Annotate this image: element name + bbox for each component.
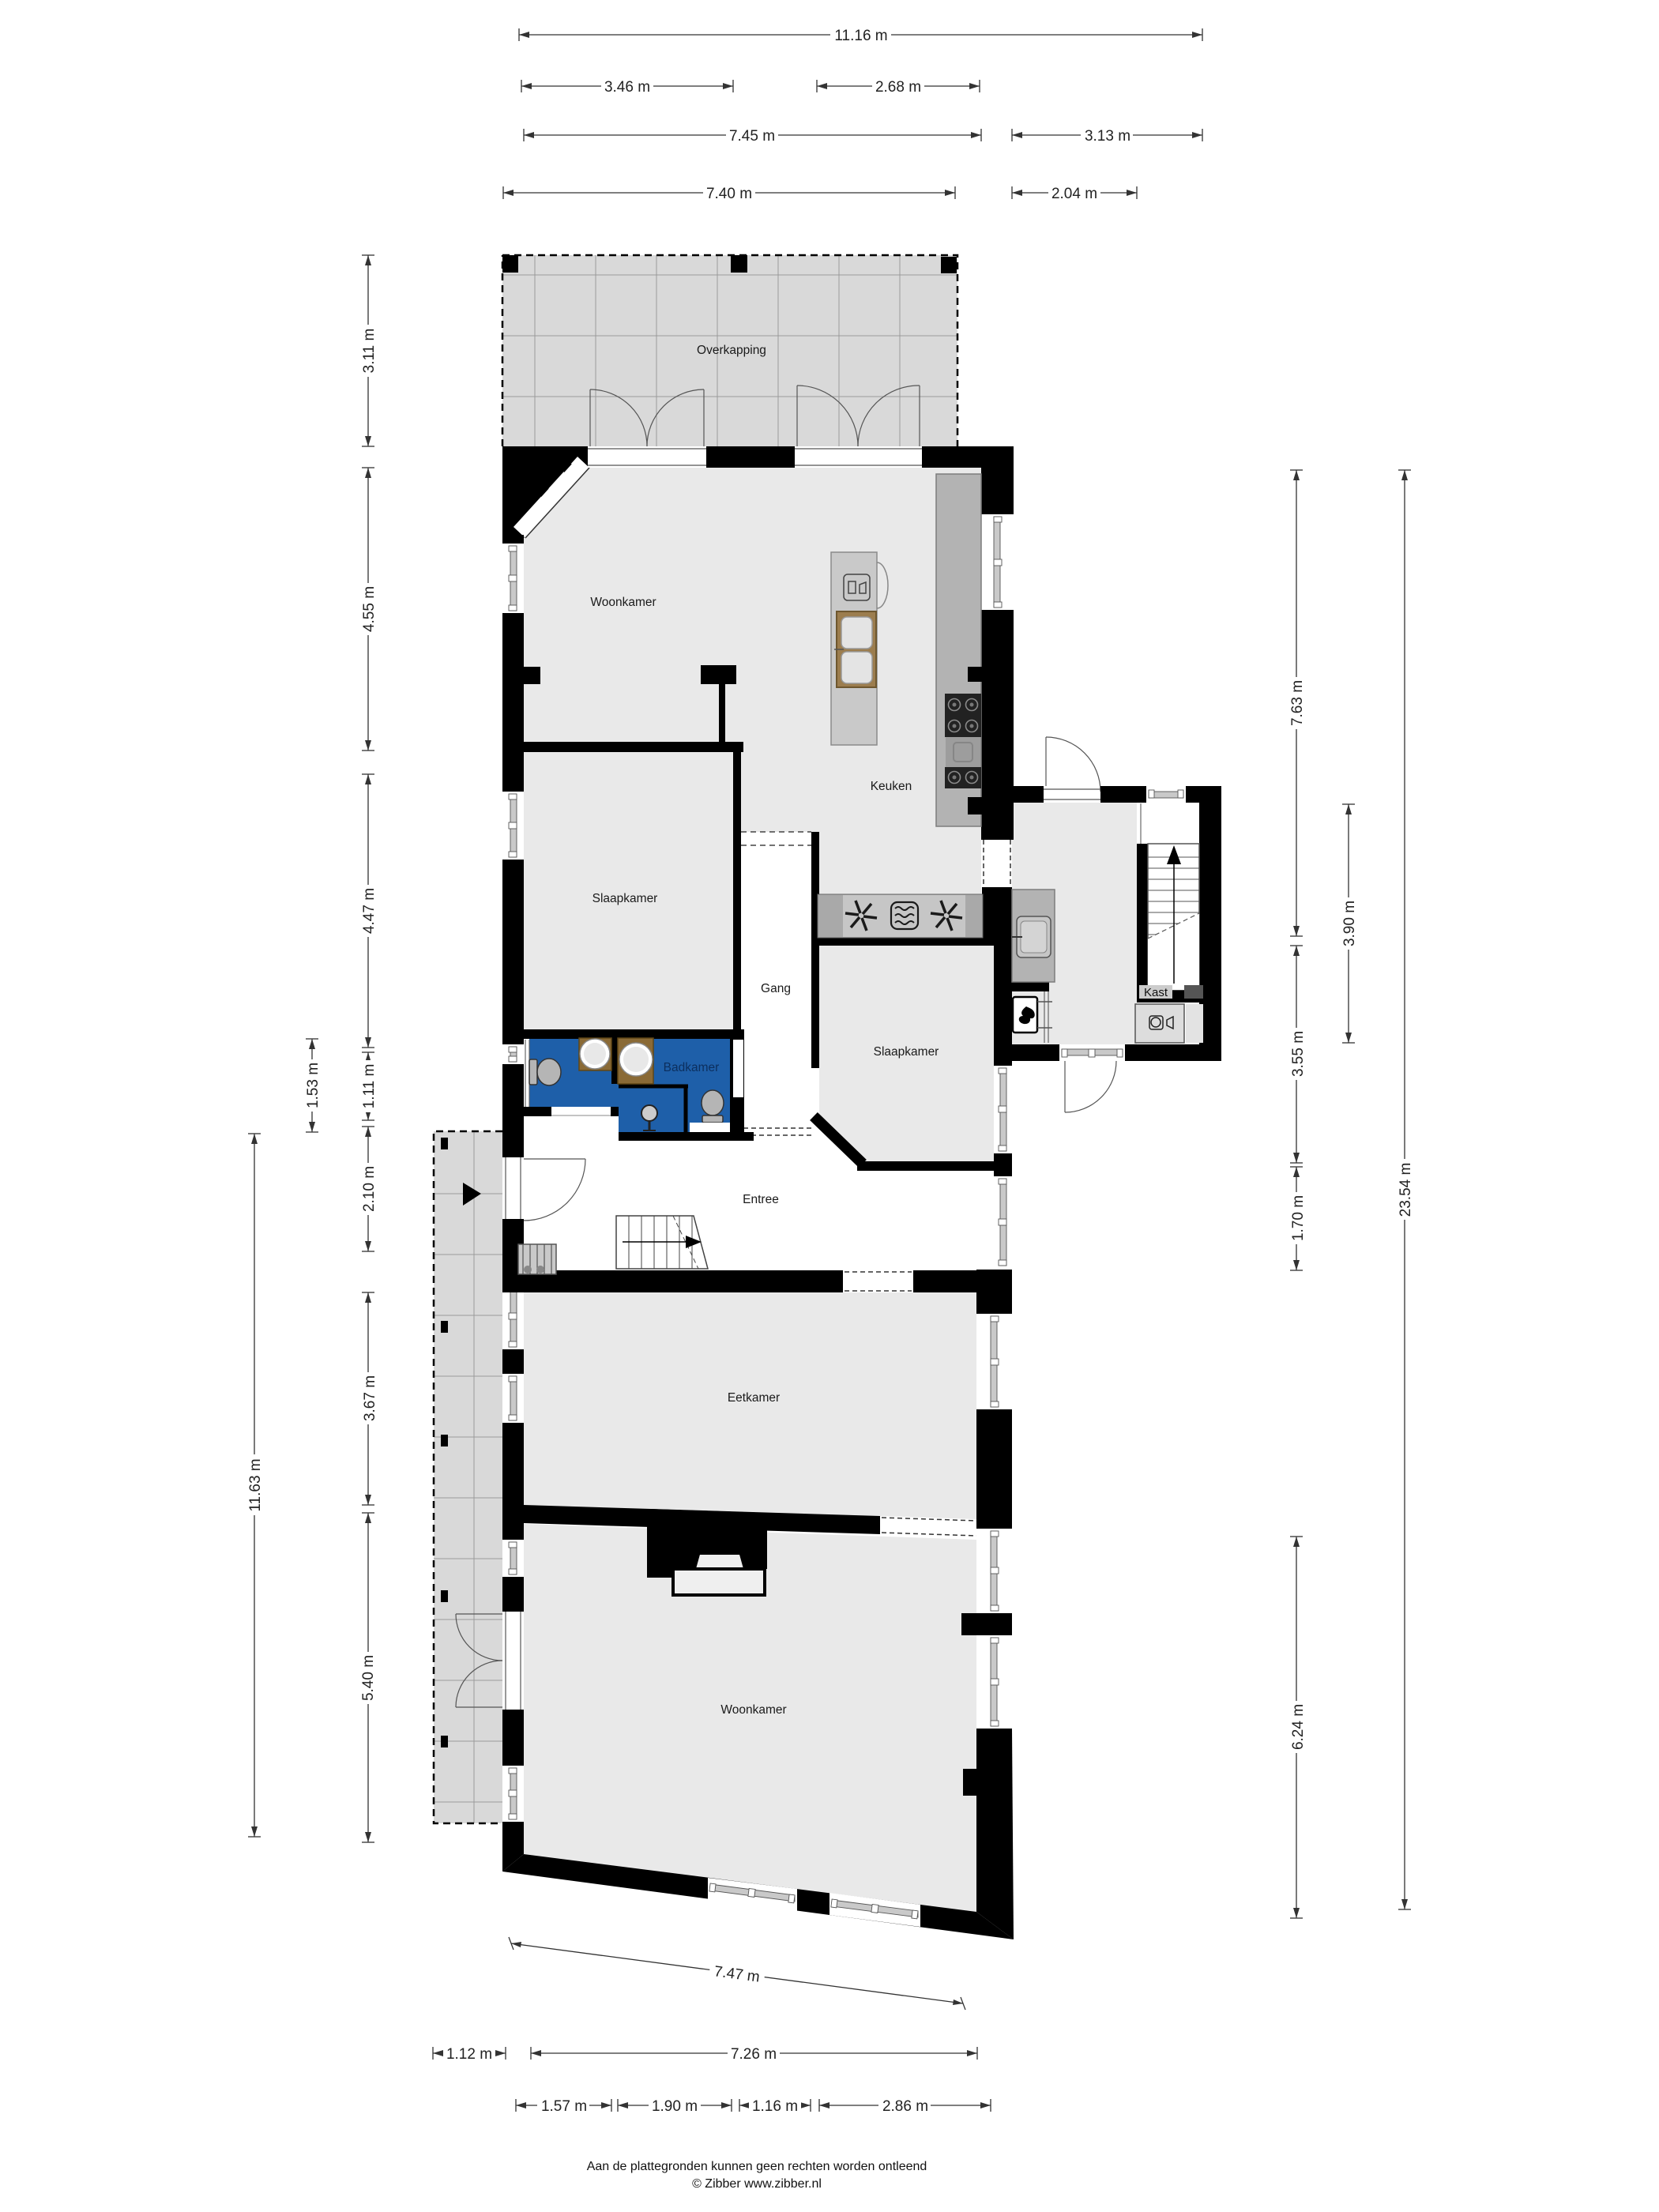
svg-text:1.53 m: 1.53 m: [305, 1063, 322, 1108]
svg-text:1.57 m: 1.57 m: [541, 2098, 587, 2115]
svg-text:1.70 m: 1.70 m: [1290, 1195, 1307, 1241]
svg-text:7.63 m: 7.63 m: [1289, 680, 1306, 726]
svg-text:1.16 m: 1.16 m: [752, 2098, 798, 2115]
svg-text:Woonkamer: Woonkamer: [590, 596, 656, 609]
svg-text:Woonkamer: Woonkamer: [720, 1703, 786, 1717]
svg-text:Entree: Entree: [743, 1193, 779, 1206]
svg-text:11.16 m: 11.16 m: [834, 28, 887, 44]
svg-text:4.55 m: 4.55 m: [361, 586, 378, 632]
svg-text:3.11 m: 3.11 m: [361, 329, 378, 374]
svg-text:Kast: Kast: [1144, 986, 1168, 999]
svg-text:11.63 m: 11.63 m: [247, 1458, 264, 1511]
svg-text:Gang: Gang: [761, 982, 791, 995]
svg-text:Badkamer: Badkamer: [664, 1061, 720, 1074]
svg-text:4.47 m: 4.47 m: [361, 888, 378, 934]
svg-text:7.40 m: 7.40 m: [706, 186, 752, 202]
svg-text:7.26 m: 7.26 m: [731, 2046, 777, 2063]
svg-text:3.67 m: 3.67 m: [362, 1375, 378, 1421]
svg-text:5.40 m: 5.40 m: [360, 1655, 377, 1701]
svg-text:Slaapkamer: Slaapkamer: [592, 892, 658, 905]
svg-text:7.45 m: 7.45 m: [729, 128, 775, 145]
svg-text:Overkapping: Overkapping: [697, 344, 766, 357]
svg-text:Aan de plattegronden kunnen ge: Aan de plattegronden kunnen geen rechten…: [587, 2160, 927, 2173]
svg-text:2.04 m: 2.04 m: [1051, 186, 1097, 202]
svg-text:Slaapkamer: Slaapkamer: [874, 1045, 939, 1059]
svg-text:2.86 m: 2.86 m: [882, 2098, 928, 2115]
svg-text:1.90 m: 1.90 m: [652, 2098, 698, 2115]
svg-text:3.90 m: 3.90 m: [1341, 901, 1358, 946]
svg-text:Keuken: Keuken: [871, 780, 912, 793]
svg-text:2.68 m: 2.68 m: [875, 79, 921, 96]
svg-text:1.12 m: 1.12 m: [446, 2046, 492, 2063]
svg-text:3.13 m: 3.13 m: [1085, 128, 1130, 145]
svg-text:6.24 m: 6.24 m: [1290, 1704, 1307, 1750]
svg-text:3.46 m: 3.46 m: [604, 79, 650, 96]
svg-text:2.10 m: 2.10 m: [361, 1166, 378, 1212]
svg-text:1.11 m: 1.11 m: [361, 1064, 378, 1109]
svg-text:3.55 m: 3.55 m: [1290, 1031, 1307, 1077]
svg-text:© Zibber www.zibber.nl: © Zibber www.zibber.nl: [692, 2177, 822, 2191]
svg-text:23.54 m: 23.54 m: [1398, 1163, 1414, 1217]
svg-text:Eetkamer: Eetkamer: [728, 1391, 780, 1405]
